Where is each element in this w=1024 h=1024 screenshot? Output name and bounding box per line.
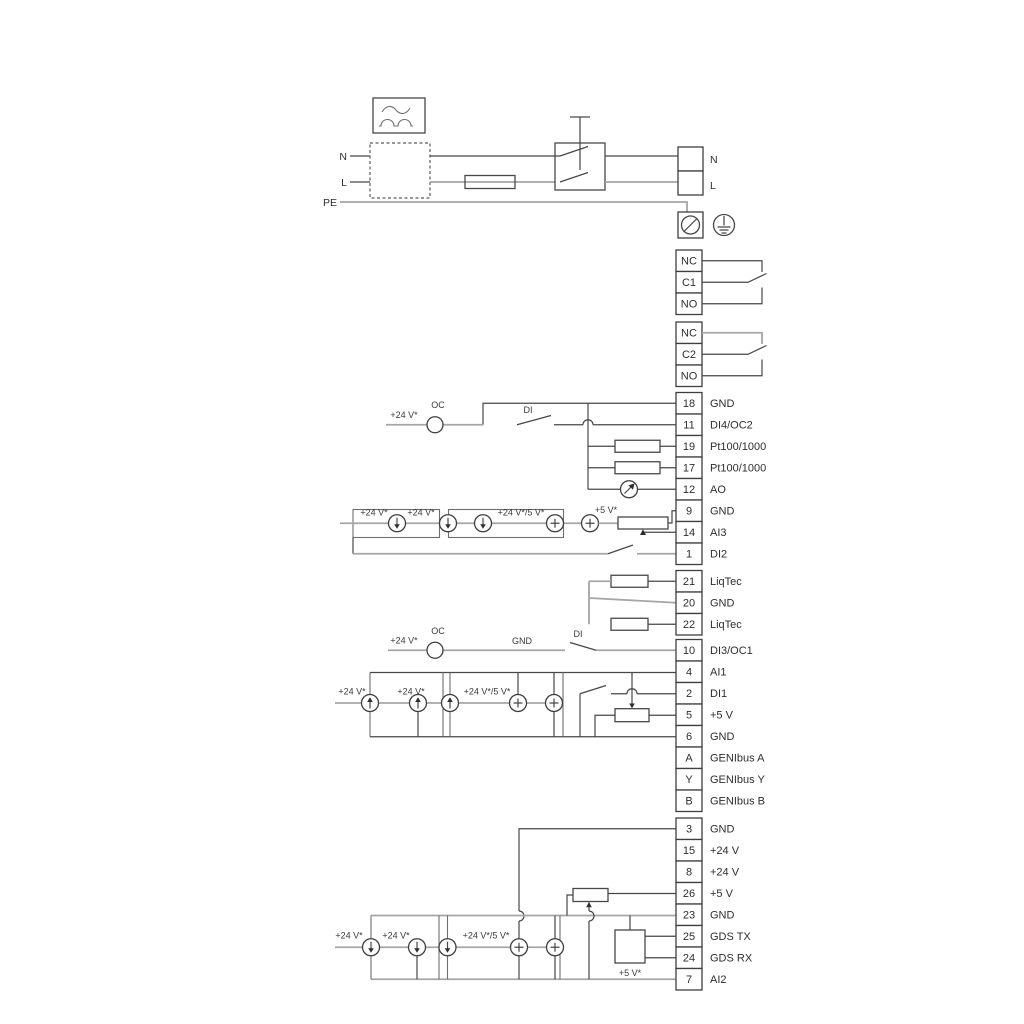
di2-switch-icon [608,545,633,554]
terminal-number: 5 [686,710,692,722]
pot-gnd-wire [595,715,615,737]
terminal-label: GND [710,910,735,922]
terminal-label: GND [710,598,735,610]
l-left-label: L [341,177,347,189]
terminal-label: Pt100/1000 [710,463,766,475]
wiring-diagram: N L PE N L NC [0,0,1024,1024]
terminal-number: 8 [686,867,692,879]
earth-terminal-icon [678,212,703,238]
relay2-nc-wire [702,333,762,344]
terminal-row: 26 +5 V [676,883,734,905]
pt100-resistor-icon [615,462,660,474]
terminal-row: 1 DI2 [676,543,727,565]
terminal-label: +24 V [710,845,740,857]
terminal-number: 11 [683,420,694,432]
terminal-row: 5 +5 V [676,704,734,726]
terminal-number: 22 [683,619,695,631]
terminal-number: 20 [683,598,695,610]
mains-section: N L PE N L [323,98,735,238]
v24-label: +24 V* [382,931,410,941]
terminal-label: AI1 [710,667,727,679]
ai2-circuit: +24 V* +24 V* +24 V*/5 V* +5 V* [335,829,676,980]
terminal-label: AO [710,484,726,496]
terminal-strip-b: 21 LiqTec 20 GND 22 LiqTec [676,571,742,636]
terminal-number: Y [685,774,693,786]
terminal-row: 8 +24 V [676,861,740,883]
open-collector-icon [427,417,443,433]
potentiometer-icon [618,517,668,529]
v5-label: +5 V* [619,968,642,978]
pot-gnd-wire [668,511,676,523]
v24-label: +24 V* [390,636,418,646]
terminal-label: AI3 [710,527,727,539]
relay2-contact-icon [702,346,767,355]
di4-switch-icon [517,416,551,425]
terminal-label: +24 V [710,867,740,879]
pot-wiper-arrow [586,902,592,908]
terminal-label: +5 V [710,888,734,900]
mains-switch-icon [555,117,605,190]
di4-oc2-circuit: +24 V* OC DI [386,400,676,498]
terminal-number: 9 [686,506,692,518]
terminal-row: 15 +24 V [676,840,740,862]
oc-label: OC [431,400,445,410]
terminal-label: AI2 [710,974,727,986]
relay2-no: NO [681,371,698,383]
terminal-label: DI3/OC1 [710,645,753,657]
terminal-row: 18 GND [676,393,735,415]
terminal-row: 25 GDS TX [676,926,751,948]
pt100-resistor-icon [615,440,660,452]
terminal-row: B GENIbus B [676,790,765,812]
terminal-number: 17 [683,463,695,475]
terminal-number: 1 [686,549,692,561]
source-link-wires [418,673,554,737]
terminal-row: 23 GND [676,904,735,926]
liqtec-sensor-icon [611,575,648,587]
terminal-number: A [685,753,693,765]
v5-label: +5 V* [595,505,618,515]
terminal-strip-a: 18 GND 11 DI4/OC2 19 Pt100/1000 17 Pt100… [676,393,766,565]
supply-dashed-box [370,143,430,198]
terminal-number: 7 [686,974,692,986]
di-label: DI [524,405,533,415]
terminal-label: Pt100/1000 [710,441,766,453]
v24-5-label: +24 V*/5 V* [463,931,510,941]
potentiometer-icon [615,709,649,722]
ac-dc-converter-icon [373,98,425,133]
sine-wave-icon [382,106,410,113]
v24-label: +24 V* [397,687,425,697]
terminal-number: 14 [683,527,695,539]
protective-earth-icon [714,215,735,236]
terminal-row: 9 GND [676,500,735,522]
relay2-c2: C2 [682,349,696,361]
v24-label: +24 V* [335,931,363,941]
relay1-block: NC C1 NO [676,250,767,315]
relay2-nc: NC [681,328,697,340]
terminal-label: GENIbus Y [710,774,765,786]
relay1-nc: NC [681,256,697,268]
terminal-row: 11 DI4/OC2 [676,414,753,436]
pe-label: PE [323,197,337,209]
pe-wire [340,202,687,212]
relay2-no-wire [702,360,762,376]
v24-label: +24 V* [407,508,435,518]
liqtec-sensor-icon [611,618,648,630]
terminal-row: 17 Pt100/1000 [676,457,766,479]
gds-module-icon [615,930,645,963]
terminal-number: 21 [683,576,695,588]
terminal-row: 3 GND [676,818,735,840]
terminal-number: 25 [683,931,695,943]
terminal-row: 24 GDS RX [676,947,753,969]
relay1-c1: C1 [682,277,696,289]
terminal-n [678,147,703,171]
relay2-block: NC C2 NO [676,322,767,387]
terminal-label: GND [710,824,735,836]
terminal-label: +5 V [710,710,734,722]
terminal-row: 4 AI1 [676,661,727,683]
terminal-label: GENIbus B [710,796,765,808]
terminal-row: 12 AO [676,479,726,501]
terminal-label: DI2 [710,549,727,561]
terminal-strip-c: 10 DI3/OC1 4 AI1 2 DI1 5 +5 V 6 GND A GE… [676,640,765,812]
terminal-label: GND [710,506,735,518]
terminal-l [678,171,703,195]
pot-gnd-wire [567,895,573,916]
terminal-number: 23 [683,910,695,922]
terminal-row: 21 LiqTec [676,571,742,593]
liqtec-circuit [589,575,676,630]
relay1-no: NO [681,299,698,311]
terminal-label: GND [710,398,735,410]
terminal-number: 4 [686,667,692,679]
terminal-row: 14 AI3 [676,522,727,544]
terminal-row: 7 AI2 [676,969,727,991]
terminal-row: A GENIbus A [676,747,765,769]
terminal-row: 19 Pt100/1000 [676,436,766,458]
terminal-number: 18 [683,398,695,410]
terminal-row: 6 GND [676,726,735,748]
terminal-row: 10 DI3/OC1 [676,640,753,662]
terminal-number: 12 [683,484,695,496]
terminal-label: DI1 [710,688,727,700]
v24-label: +24 V* [360,508,388,518]
gnd3-wire [519,829,676,939]
terminal-row: 2 DI1 [676,683,727,705]
terminal-number: 19 [683,441,695,453]
ai3-circuit: +24 V* +24 V* +24 V*/5 V* +5 V* [340,505,676,554]
terminal-number: 2 [686,688,692,700]
terminal-row: 22 LiqTec [676,614,742,636]
terminal-number: 15 [683,845,695,857]
terminal-number: 6 [686,731,692,743]
v24-label: +24 V* [390,410,418,420]
v24-5-label: +24 V*/5 V* [498,508,545,518]
oc-label: OC [431,626,445,636]
terminal-number: 3 [686,824,692,836]
terminal-label: DI4/OC2 [710,420,753,432]
terminal-label: GENIbus A [710,753,765,765]
relay1-contact-icon [702,274,767,283]
n-left-label: N [339,151,347,163]
terminal-number: 24 [683,953,695,965]
terminal-strip-d: 3 GND 15 +24 V 8 +24 V 26 +5 V 23 GND 25… [676,818,753,990]
rectified-wave-icon [379,120,413,126]
open-collector-icon [427,642,443,658]
option-box-edges [370,673,563,737]
terminal-label: LiqTec [710,619,742,631]
gnd-label: GND [512,636,533,646]
potentiometer-icon [573,889,608,902]
terminal-row: 20 GND [676,592,735,614]
v24-label: +24 V* [338,687,366,697]
ai1-circuit: +24 V* +24 V* +24 V*/5 V* [335,673,676,737]
l-right-label: L [710,180,716,192]
terminal-label: GND [710,731,735,743]
di3-switch-icon [570,643,596,651]
terminal-label: GDS TX [710,931,751,943]
di-label: DI [574,629,583,639]
pot-wiper-arrow [629,704,635,709]
terminal-label: GDS RX [710,953,753,965]
terminal-row: Y GENIbus Y [676,769,765,791]
v24-5-label: +24 V*/5 V* [464,687,511,697]
gnd18-wire [483,403,676,425]
di1-switch-icon [580,686,606,694]
n-right-label: N [710,154,718,166]
terminal-number: 26 [683,888,695,900]
terminal-label: LiqTec [710,576,742,588]
terminal-number: 10 [683,645,695,657]
terminal-number: B [685,796,692,808]
